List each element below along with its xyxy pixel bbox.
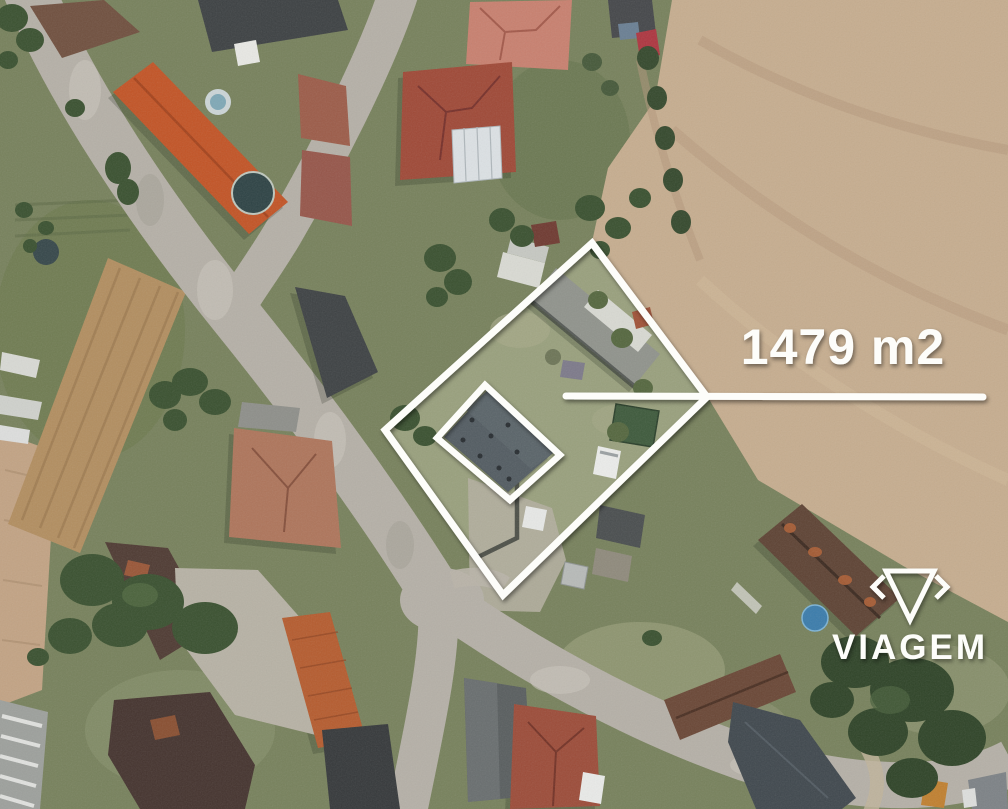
area-label: 1479 m2 — [741, 319, 945, 375]
viagem-wordmark: VIAGEM — [832, 628, 988, 667]
leader-line — [566, 396, 983, 397]
aerial-photo-screenshot: 1479 m2 VIAGEM — [0, 0, 1008, 809]
aerial-photo: 1479 m2 VIAGEM — [0, 0, 1008, 809]
